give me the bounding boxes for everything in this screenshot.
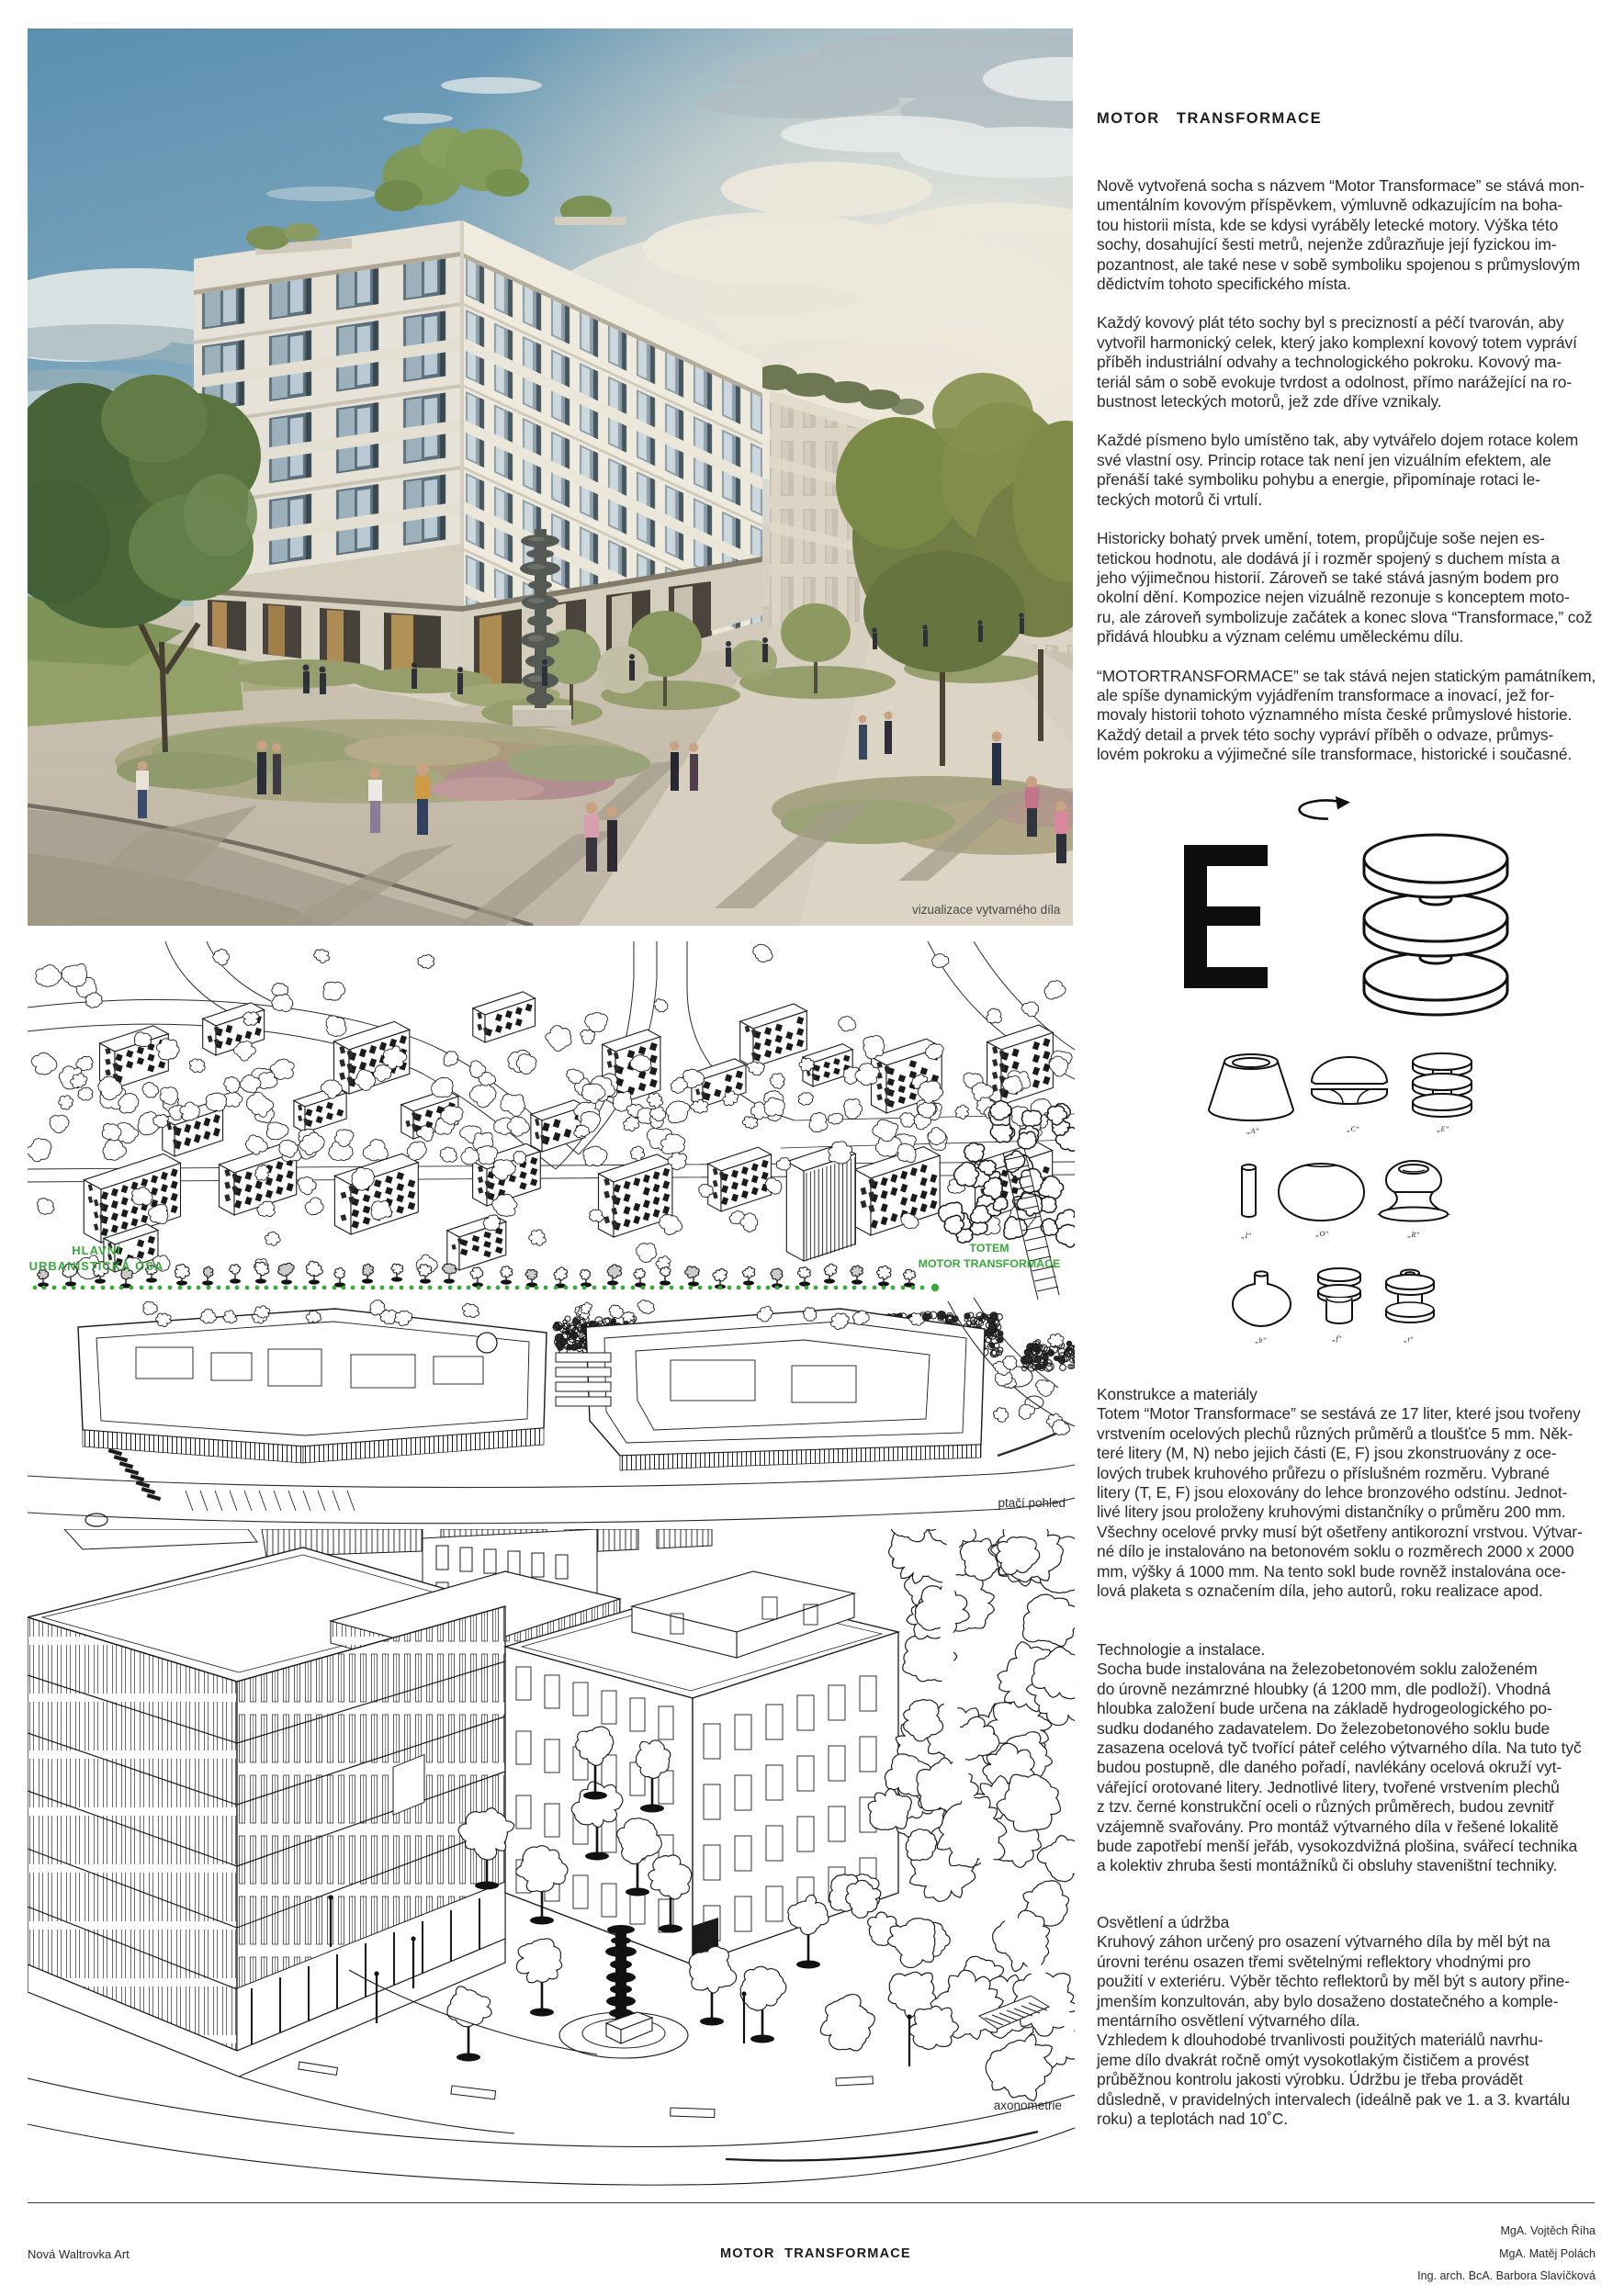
svg-text:TOTEM: TOTEM [969, 1242, 1009, 1255]
svg-text:„A“: „A“ [1246, 1127, 1259, 1135]
svg-text:„t“: „t“ [1404, 1335, 1415, 1344]
svg-text:„C“: „C“ [1347, 1125, 1360, 1133]
svg-text:„E“: „E“ [1437, 1125, 1449, 1133]
svg-text:„R“: „R“ [1407, 1231, 1420, 1239]
svg-text:„I“: „I“ [1241, 1232, 1252, 1240]
svg-text:ptačí pohled: ptačí pohled [998, 1496, 1066, 1510]
svg-text:URBANISTICKÁ OSA: URBANISTICKÁ OSA [29, 1259, 164, 1273]
svg-text:HLAVNÍ: HLAVNÍ [72, 1244, 120, 1257]
svg-text:vizualizace vytvarného díla: vizualizace vytvarného díla [912, 903, 1061, 917]
svg-text:„f“: „f“ [1332, 1334, 1343, 1343]
svg-text:„b“: „b“ [1255, 1336, 1267, 1345]
svg-text:axonometrie: axonometrie [994, 2099, 1062, 2112]
svg-text:„O“: „O“ [1315, 1230, 1329, 1238]
svg-text:MOTOR TRANSFORMACE: MOTOR TRANSFORMACE [919, 1257, 1061, 1270]
